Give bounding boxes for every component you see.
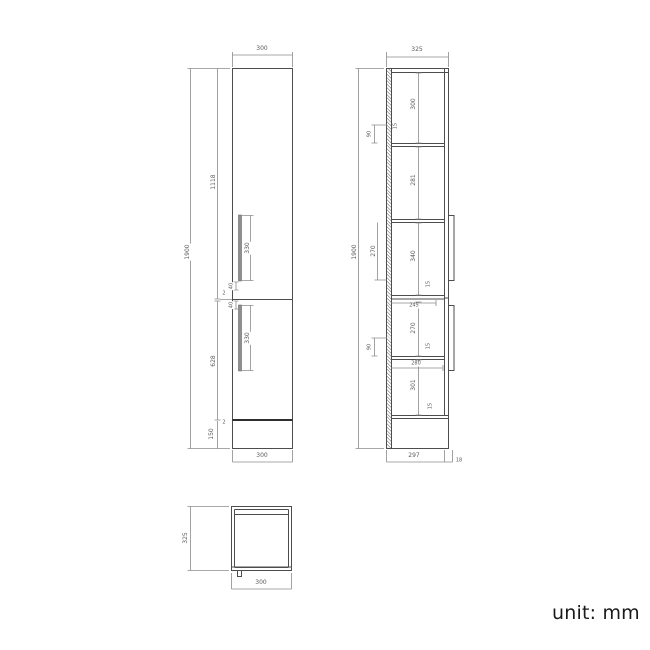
front-overall-height-dim-label: 1900	[185, 243, 191, 260]
front-upper-door-height-dim-label: 1118	[211, 173, 217, 190]
section-door-thickness-dim-label: 18	[455, 459, 463, 464]
front-plinth-height-dim-label: 150	[209, 427, 215, 440]
section-compartment-1-dim-label: 300	[411, 97, 417, 110]
front-lower-handle-length-dim-label: 330	[245, 331, 251, 344]
section-lower-handle-profile	[449, 306, 455, 371]
section-depth-overall-dim-label: 325	[410, 47, 423, 53]
section-upper-handle-profile	[449, 216, 455, 281]
section-shelf-depth-2-dim-label: 280	[410, 362, 422, 367]
section-overall-height-dim-label: 1900	[352, 243, 358, 260]
front-lower-door-handle	[239, 305, 242, 371]
section-compartment-2-dim-label: 281	[411, 173, 417, 186]
front-lower-handle-offset-dim-label: 40	[230, 301, 235, 309]
top-view-depth-dim-label: 325	[183, 531, 189, 544]
section-shelf-thickness-4-dim-label: 15	[429, 402, 434, 410]
front-width-top-dim-label: 300	[255, 46, 268, 52]
section-compartment-5-dim-label: 301	[411, 378, 417, 391]
top-view-handle	[238, 571, 242, 577]
drawing-linework	[0, 0, 650, 650]
section-back-panel-hatch	[387, 69, 391, 448]
top-view-walls-and-door	[232, 510, 292, 568]
section-carcass-depth-dim-label: 297	[407, 453, 420, 459]
front-view	[233, 69, 293, 449]
unit-note: unit: mm	[552, 602, 640, 624]
section-shelf-thickness-1-dim-label: 15	[394, 122, 399, 130]
front-width-bottom-dim-label: 300	[255, 453, 268, 459]
top-view-outline	[232, 507, 292, 571]
section-back-bracket-1-dim-label: 90	[368, 130, 373, 138]
front-upper-door-handle	[239, 215, 242, 281]
section-shelf-depth-1-dim-label: 245	[408, 304, 420, 309]
front-upper-handle-length-dim-label: 330	[245, 241, 251, 254]
section-compartment-4-dim-label: 270	[411, 321, 417, 334]
front-door-gap-mid-dim-label: 2	[221, 292, 226, 297]
section-back-bracket-2-dim-label: 90	[368, 343, 373, 351]
technical-drawing-canvas: 300 1900 1118 628 150 2 2 330 330 40 40 …	[0, 0, 650, 650]
top-view	[232, 507, 292, 577]
front-lower-door-height-dim-label: 628	[211, 354, 217, 367]
section-compartment-3-dim-label: 340	[411, 249, 417, 262]
front-upper-handle-offset-dim-label: 40	[230, 282, 235, 290]
top-view-width-dim-label: 300	[254, 580, 267, 586]
section-left-inner-height-dim-label: 270	[371, 244, 377, 257]
section-shelf-thickness-2-dim-label: 15	[427, 280, 432, 288]
section-shelf-thickness-3-dim-label: 15	[427, 342, 432, 350]
front-door-gap-bottom-dim-label: 2	[221, 421, 226, 426]
